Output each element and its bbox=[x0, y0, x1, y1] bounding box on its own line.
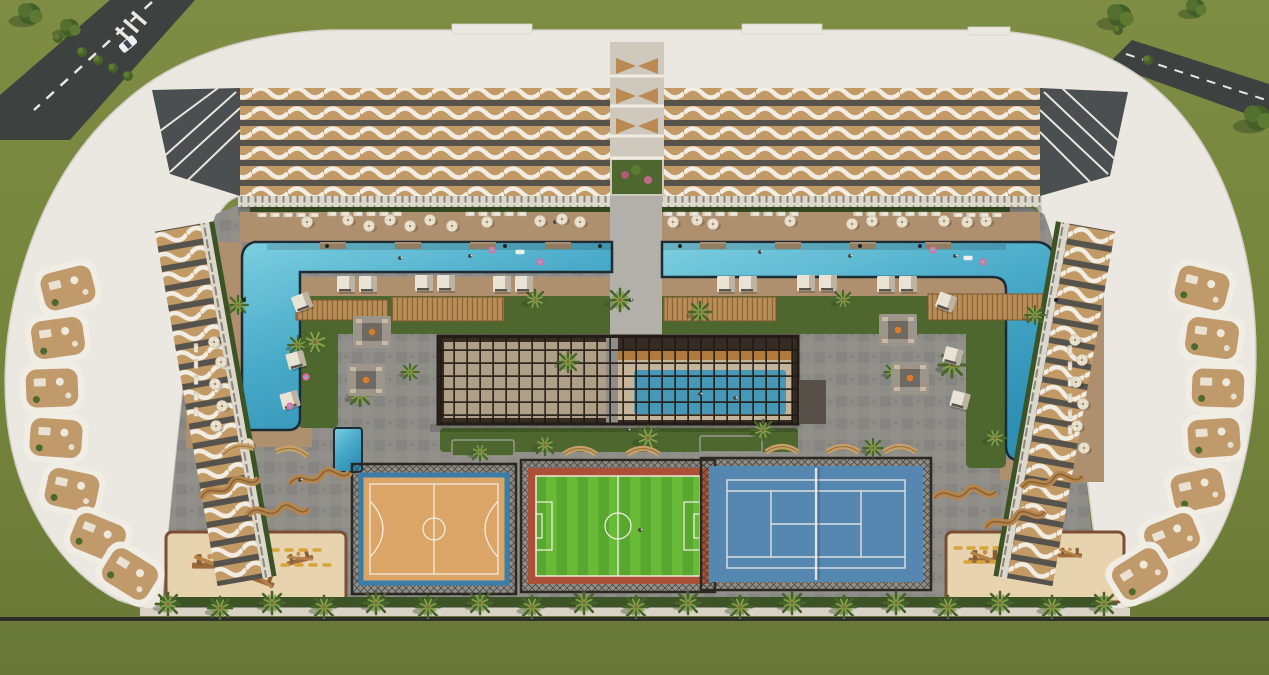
cabana bbox=[899, 276, 917, 294]
cabana bbox=[437, 275, 455, 293]
fire-pit-lounge bbox=[347, 364, 385, 396]
sun-lounger bbox=[690, 212, 699, 216]
sun-lounger bbox=[1068, 362, 1072, 371]
cabana bbox=[337, 276, 355, 294]
sun-lounger bbox=[751, 212, 760, 216]
sun-lounger bbox=[954, 213, 963, 217]
sun-lounger bbox=[479, 212, 488, 216]
cabana bbox=[819, 275, 837, 293]
outdoor-gym-equipment bbox=[285, 548, 294, 552]
amenity-pavilion bbox=[430, 336, 826, 432]
outdoor-gym-equipment bbox=[323, 563, 332, 567]
sun-lounger bbox=[328, 212, 337, 216]
sun-lounger bbox=[194, 376, 198, 385]
sun-lounger bbox=[1068, 410, 1072, 419]
sun-lounger bbox=[880, 212, 889, 216]
bush bbox=[53, 33, 63, 43]
sun-lounger bbox=[194, 360, 198, 369]
cabana bbox=[717, 276, 735, 294]
sun-lounger bbox=[466, 212, 475, 216]
pavilion-grid-roof bbox=[438, 336, 798, 424]
pool-float-pink bbox=[536, 258, 543, 265]
outdoor-gym-equipment bbox=[299, 548, 308, 552]
bush bbox=[108, 63, 118, 73]
sun-lounger bbox=[729, 212, 738, 216]
roof-terrace bbox=[1180, 411, 1247, 465]
sun-lounger bbox=[703, 212, 712, 216]
sun-lounger bbox=[1068, 346, 1072, 355]
sun-lounger bbox=[194, 408, 198, 417]
render-canvas: Aerial 3D render of a U-shaped residenti… bbox=[0, 0, 1269, 675]
roof-terrace bbox=[22, 411, 89, 465]
recess-garden bbox=[612, 160, 662, 194]
sun-lounger bbox=[341, 212, 350, 216]
fire-pit-lounge bbox=[891, 362, 929, 394]
sun-lounger bbox=[980, 213, 989, 217]
central-walkway bbox=[610, 196, 662, 338]
sun-lounger bbox=[393, 212, 402, 216]
pool-ladder bbox=[242, 298, 246, 302]
bush bbox=[1113, 25, 1123, 35]
pool-ladder bbox=[503, 244, 507, 248]
sun-lounger bbox=[967, 213, 976, 217]
bush bbox=[93, 55, 103, 65]
sun-lounger bbox=[993, 213, 1002, 217]
sun-lounger bbox=[664, 212, 673, 216]
sun-lounger bbox=[764, 212, 773, 216]
outdoor-gym-equipment bbox=[964, 560, 973, 564]
pool-float-pink bbox=[979, 258, 986, 265]
pool-ladder bbox=[918, 244, 922, 248]
sun-lounger bbox=[1068, 394, 1072, 403]
sun-lounger bbox=[284, 213, 293, 217]
outdoor-gym-equipment bbox=[977, 560, 986, 564]
outdoor-gym-equipment bbox=[954, 546, 963, 550]
cabana bbox=[797, 275, 815, 293]
central-recess bbox=[610, 42, 664, 196]
sun-lounger bbox=[893, 212, 902, 216]
pool-ladder bbox=[858, 244, 862, 248]
sun-lounger bbox=[854, 212, 863, 216]
sun-lounger bbox=[367, 212, 376, 216]
pool-float-white bbox=[964, 256, 973, 260]
sun-lounger bbox=[1068, 426, 1072, 435]
outdoor-gym-equipment bbox=[313, 548, 322, 552]
bush bbox=[123, 71, 133, 81]
sun-lounger bbox=[194, 344, 198, 353]
roof-terrace bbox=[1185, 362, 1251, 414]
pool-ladder bbox=[678, 244, 682, 248]
pool-ladder bbox=[325, 244, 329, 248]
pool-ladder bbox=[598, 244, 602, 248]
sun-lounger bbox=[932, 212, 941, 216]
fire-pit-lounge bbox=[879, 314, 917, 346]
sun-lounger bbox=[194, 392, 198, 401]
sun-lounger bbox=[919, 212, 928, 216]
cabana bbox=[877, 276, 895, 294]
play-structure bbox=[1058, 548, 1082, 558]
sun-lounger bbox=[867, 212, 876, 216]
outdoor-gym-equipment bbox=[295, 563, 304, 567]
roof-terrace bbox=[1177, 309, 1247, 367]
sun-lounger bbox=[297, 213, 306, 217]
sun-lounger bbox=[258, 213, 267, 217]
sun-lounger bbox=[310, 213, 319, 217]
pavilion-annex bbox=[800, 380, 826, 424]
sun-lounger bbox=[777, 212, 786, 216]
sun-lounger bbox=[677, 212, 686, 216]
pool-float-pink bbox=[488, 246, 495, 253]
sun-lounger bbox=[906, 212, 915, 216]
pool-float-pink bbox=[929, 246, 936, 253]
cabana bbox=[739, 276, 757, 294]
outdoor-gym-equipment bbox=[967, 546, 976, 550]
pool-float-pink bbox=[286, 402, 293, 409]
tennis-court bbox=[701, 458, 931, 590]
sun-lounger bbox=[790, 212, 799, 216]
outdoor-gym-equipment bbox=[309, 563, 318, 567]
sun-lounger bbox=[380, 212, 389, 216]
pool-float-pink bbox=[302, 373, 309, 380]
cabana bbox=[493, 276, 511, 294]
fire-pit-lounge bbox=[353, 316, 391, 348]
aerial-render: Aerial 3D render of a U-shaped residenti… bbox=[0, 0, 1269, 675]
basketball-court bbox=[352, 464, 516, 594]
sun-lounger bbox=[1068, 378, 1072, 387]
bush bbox=[1143, 55, 1153, 65]
sun-lounger bbox=[716, 212, 725, 216]
pool-ladder bbox=[1054, 298, 1058, 302]
pool-float-white bbox=[516, 250, 525, 254]
sun-lounger bbox=[518, 212, 527, 216]
outdoor-gym-equipment bbox=[281, 563, 290, 567]
cabana bbox=[415, 275, 433, 293]
sun-lounger bbox=[354, 212, 363, 216]
sun-lounger bbox=[492, 212, 501, 216]
outdoor-gym-equipment bbox=[980, 546, 989, 550]
perimeter-fence bbox=[0, 617, 1269, 621]
cabana bbox=[359, 276, 377, 294]
cabana bbox=[515, 276, 533, 294]
planter-box bbox=[700, 436, 762, 452]
sun-lounger bbox=[271, 213, 280, 217]
football-pitch bbox=[521, 460, 715, 592]
bush bbox=[77, 47, 87, 57]
roof-terrace bbox=[23, 309, 93, 367]
roof-terrace bbox=[19, 362, 85, 414]
sun-lounger bbox=[505, 212, 514, 216]
